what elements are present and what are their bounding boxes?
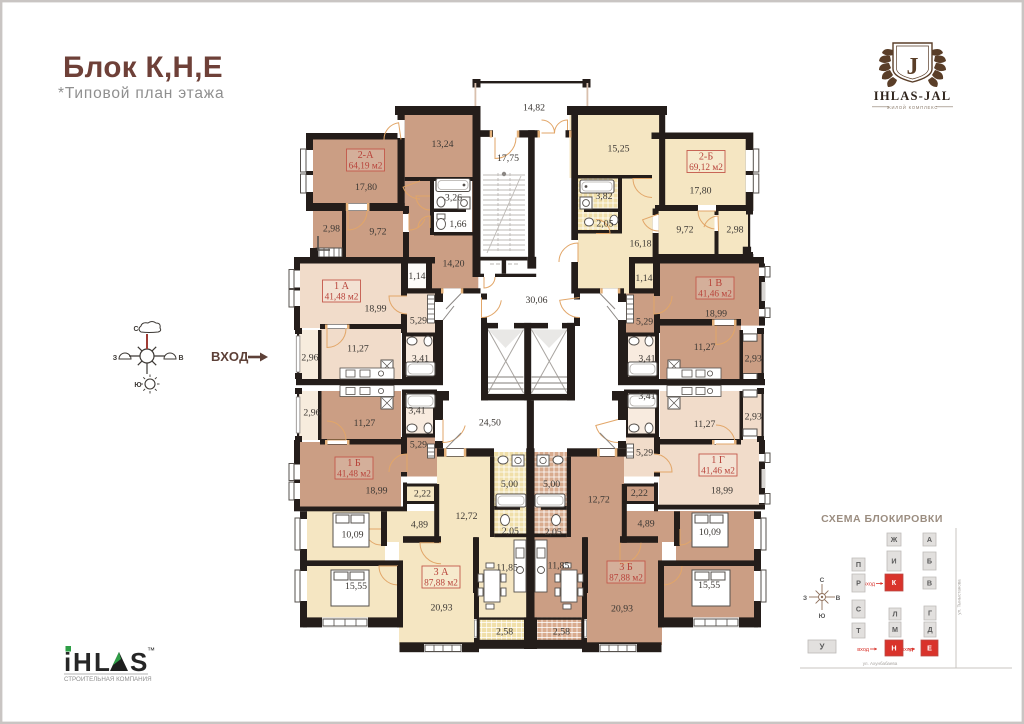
svg-text:2,58: 2,58	[496, 627, 513, 638]
svg-text:Г: Г	[928, 609, 932, 618]
svg-text:ВХОД: ВХОД	[211, 349, 249, 364]
svg-text:Ю: Ю	[819, 613, 826, 620]
svg-text:2,93: 2,93	[745, 354, 762, 365]
svg-text:24,50: 24,50	[479, 418, 501, 429]
svg-text:1,14: 1,14	[408, 271, 425, 282]
svg-text:H: H	[73, 647, 92, 677]
svg-text:18,99: 18,99	[705, 309, 727, 320]
svg-text:41,48 м2: 41,48 м2	[337, 470, 371, 480]
svg-text:В: В	[836, 595, 841, 602]
svg-text:2,96: 2,96	[303, 408, 320, 419]
svg-text:2,58: 2,58	[553, 627, 570, 638]
svg-text:3,82: 3,82	[595, 191, 612, 202]
svg-text:11,85: 11,85	[496, 563, 518, 574]
svg-text:3 Б: 3 Б	[619, 562, 633, 573]
svg-text:2-Б: 2-Б	[699, 152, 713, 163]
svg-text:В: В	[178, 355, 183, 362]
svg-text:15,55: 15,55	[698, 580, 720, 591]
svg-text:18,99: 18,99	[364, 304, 386, 315]
svg-text:ул. Тыныстанова: ул. Тыныстанова	[957, 579, 962, 615]
svg-text:11,27: 11,27	[694, 419, 716, 430]
svg-text:Д: Д	[927, 625, 932, 634]
svg-text:3,26: 3,26	[445, 193, 462, 204]
svg-text:2,98: 2,98	[726, 225, 743, 236]
svg-text:™: ™	[147, 646, 155, 655]
svg-text:М: М	[892, 625, 898, 634]
svg-text:Блок К,Н,Е: Блок К,Н,Е	[63, 51, 223, 84]
svg-text:1 В: 1 В	[708, 278, 723, 289]
svg-text:11,27: 11,27	[354, 418, 376, 429]
svg-text:13,24: 13,24	[431, 139, 453, 150]
svg-text:2,05: 2,05	[502, 526, 519, 537]
svg-text:18,99: 18,99	[711, 486, 733, 497]
svg-text:З: З	[803, 595, 807, 602]
svg-text:9,72: 9,72	[369, 227, 386, 238]
svg-text:15,55: 15,55	[345, 581, 367, 592]
svg-text:10,09: 10,09	[699, 527, 721, 538]
svg-text:20,93: 20,93	[430, 603, 452, 614]
svg-text:*Типовой план этажа: *Типовой план этажа	[58, 85, 224, 102]
svg-text:2,22: 2,22	[631, 488, 648, 499]
svg-text:3 А: 3 А	[434, 567, 450, 578]
svg-text:5,29: 5,29	[636, 316, 653, 327]
svg-text:5,29: 5,29	[410, 440, 427, 451]
svg-text:64,19 м2: 64,19 м2	[349, 162, 383, 172]
svg-text:41,46 м2: 41,46 м2	[701, 467, 735, 477]
svg-text:5,29: 5,29	[636, 448, 653, 459]
svg-text:L: L	[94, 647, 110, 677]
svg-text:11,27: 11,27	[347, 344, 369, 355]
svg-text:Т: Т	[856, 626, 861, 635]
svg-text:4,89: 4,89	[411, 520, 428, 531]
svg-text:87,88 м2: 87,88 м2	[609, 574, 643, 584]
svg-text:СХЕМА БЛОКИРОВКИ: СХЕМА БЛОКИРОВКИ	[821, 513, 943, 525]
svg-text:4,89: 4,89	[638, 519, 655, 530]
svg-text:2,05: 2,05	[545, 527, 562, 538]
svg-text:10,09: 10,09	[341, 530, 363, 541]
svg-text:2,98: 2,98	[323, 224, 340, 235]
svg-text:П: П	[856, 560, 861, 569]
svg-text:12,72: 12,72	[455, 511, 477, 522]
svg-text:87,88 м2: 87,88 м2	[424, 579, 458, 589]
svg-text:Н: Н	[891, 644, 896, 653]
svg-text:30,06: 30,06	[525, 295, 547, 306]
svg-text:17,75: 17,75	[497, 153, 519, 164]
svg-text:17,80: 17,80	[355, 182, 377, 193]
svg-text:Л: Л	[892, 610, 897, 619]
svg-text:18,99: 18,99	[365, 486, 387, 497]
svg-text:11,27: 11,27	[694, 342, 716, 353]
svg-text:И: И	[891, 557, 896, 566]
svg-text:15,25: 15,25	[607, 144, 629, 155]
svg-text:1 А: 1 А	[334, 281, 350, 292]
svg-text:J: J	[907, 54, 919, 80]
svg-text:3,41: 3,41	[638, 391, 655, 402]
svg-text:14,82: 14,82	[523, 103, 545, 114]
svg-text:1 Г: 1 Г	[711, 455, 725, 466]
svg-text:С: С	[820, 577, 825, 584]
svg-text:В: В	[927, 579, 932, 588]
svg-text:Ю: Ю	[134, 382, 141, 389]
svg-text:2,93: 2,93	[745, 412, 762, 423]
svg-text:5,00: 5,00	[501, 479, 518, 490]
svg-text:СТРОИТЕЛЬНАЯ КОМПАНИЯ: СТРОИТЕЛЬНАЯ КОМПАНИЯ	[64, 676, 152, 683]
svg-text:9,72: 9,72	[676, 225, 693, 236]
svg-text:5,00: 5,00	[543, 479, 560, 490]
svg-text:ул. Ахунбабаева: ул. Ахунбабаева	[863, 661, 898, 666]
svg-text:S: S	[130, 647, 147, 677]
svg-text:20,93: 20,93	[611, 603, 633, 614]
svg-text:1,66: 1,66	[449, 219, 466, 230]
svg-text:Ж: Ж	[890, 535, 898, 544]
svg-text:С: С	[133, 326, 138, 333]
svg-text:12,72: 12,72	[588, 495, 610, 506]
svg-text:1,14: 1,14	[635, 273, 652, 284]
svg-text:А: А	[927, 535, 932, 544]
svg-text:2,22: 2,22	[414, 489, 431, 500]
svg-text:З: З	[113, 355, 118, 362]
svg-text:С: С	[856, 605, 861, 614]
svg-text:IHLAS-JAL: IHLAS-JAL	[874, 89, 951, 103]
svg-text:41,48 м2: 41,48 м2	[325, 293, 359, 303]
svg-text:1 Б: 1 Б	[347, 458, 361, 469]
svg-text:вход: вход	[901, 647, 914, 653]
svg-text:2-А: 2-А	[358, 150, 374, 161]
svg-text:3,41: 3,41	[412, 354, 429, 365]
svg-text:17,80: 17,80	[689, 186, 711, 197]
svg-text:2,05: 2,05	[596, 219, 613, 230]
svg-text:69,12 м2: 69,12 м2	[689, 163, 723, 173]
svg-text:16,18: 16,18	[629, 239, 651, 250]
svg-text:Б: Б	[927, 557, 932, 566]
svg-text:К: К	[892, 578, 897, 587]
svg-text:3,41: 3,41	[408, 405, 425, 416]
svg-text:5,29: 5,29	[410, 316, 427, 327]
svg-text:41,46 м2: 41,46 м2	[698, 290, 732, 300]
svg-text:Р: Р	[856, 579, 861, 588]
svg-text:2,96: 2,96	[301, 353, 318, 364]
svg-text:вход: вход	[857, 647, 870, 653]
svg-text:Е: Е	[927, 644, 932, 653]
svg-text:ЖИЛОЙ КОМПЛЕКС: ЖИЛОЙ КОМПЛЕКС	[887, 105, 938, 110]
svg-text:14,20: 14,20	[442, 259, 464, 270]
svg-text:11,85: 11,85	[548, 560, 570, 571]
svg-text:3,41: 3,41	[638, 354, 655, 365]
